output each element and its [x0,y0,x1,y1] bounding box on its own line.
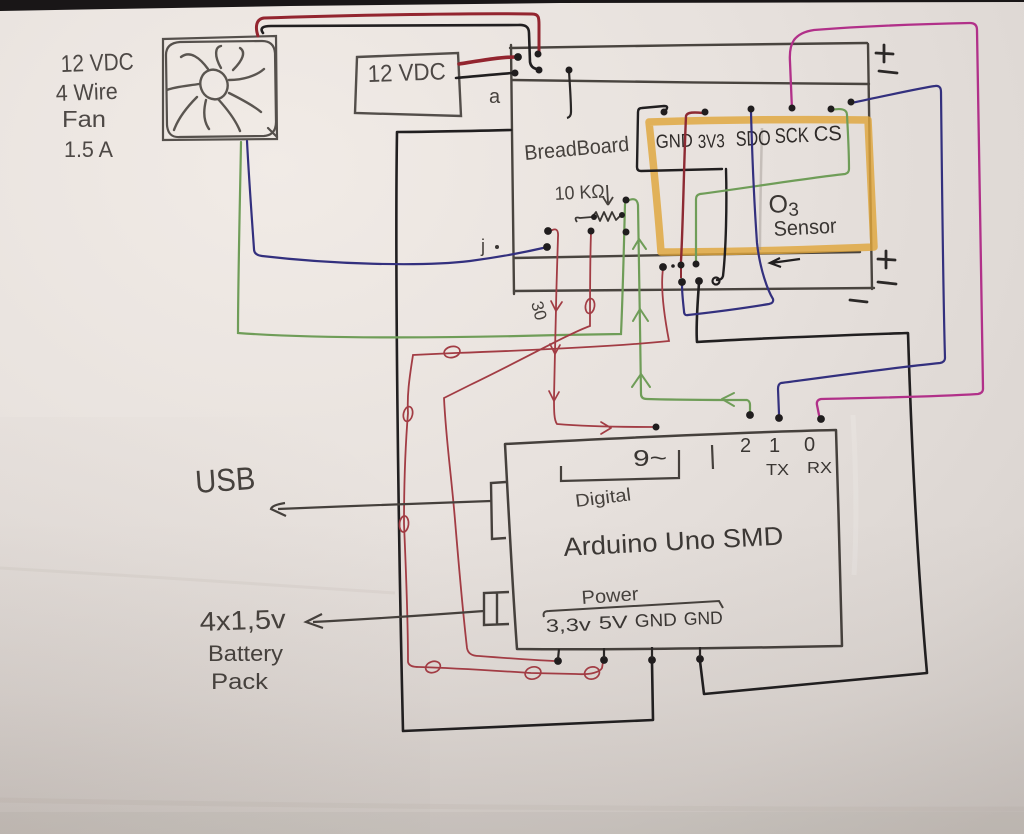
svg-text:Pack: Pack [211,669,269,694]
svg-text:12 VDC: 12 VDC [60,48,134,78]
svg-text:CS: CS [813,122,842,146]
svg-text:3V3: 3V3 [697,131,725,153]
svg-text:GND: GND [655,131,693,153]
svg-text:j: j [480,236,485,256]
svg-text:9~: 9~ [633,445,667,471]
svg-text:SDO: SDO [735,127,771,151]
svg-text:1: 1 [769,435,780,457]
svg-text:2: 2 [740,435,751,457]
svg-text:GND: GND [634,610,677,631]
svg-text:USB: USB [194,460,256,500]
svg-text:SCK: SCK [774,124,809,148]
svg-text:GND: GND [683,608,723,629]
svg-text:5V: 5V [598,612,628,633]
svg-text:3,3v: 3,3v [545,614,591,636]
svg-text:0: 0 [804,434,815,456]
svg-text:4 Wire: 4 Wire [55,78,118,106]
svg-text:1.5 A: 1.5 A [64,137,113,162]
svg-text:Fan: Fan [62,106,106,132]
svg-text:12 VDC: 12 VDC [367,58,446,88]
svg-text:RX: RX [807,460,832,477]
svg-text:a: a [489,86,501,108]
svg-text:10 KΩ: 10 KΩ [554,181,605,205]
svg-text:4x1,5v: 4x1,5v [199,604,287,637]
svg-text:TX: TX [766,462,789,479]
svg-text:Battery: Battery [208,641,283,666]
svg-text:Sensor: Sensor [773,215,837,241]
